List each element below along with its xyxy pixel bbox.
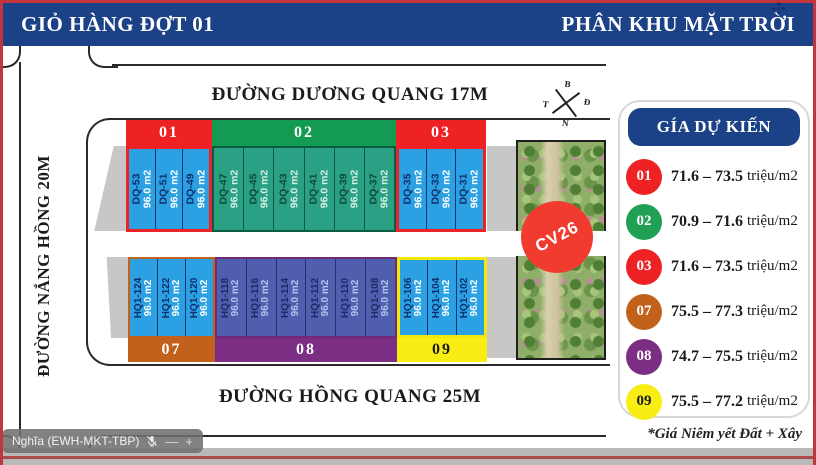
plot-area: 96.0 m2 [200,279,210,316]
plot-DQ-39: DQ-3996.0 m2 [334,148,364,230]
plot-area: 96.0 m2 [231,279,241,316]
plot-HQ1-104: HQ1-10496.0 m2 [427,260,455,335]
collapse-button[interactable]: — [165,435,178,448]
plot-DQ-47: DQ-4796.0 m2 [214,148,243,230]
plot-area: 96.0 m2 [229,170,240,209]
plot-DQ-51: DQ-5196.0 m2 [155,149,182,229]
legend-row-08: 0874.7 – 75.5triệu/m2 [620,334,808,379]
legend-row-01: 0171.6 – 73.5triệu/m2 [620,154,808,199]
header-bar: GIỎ HÀNG ĐỢT 01 PHÂN KHU MẶT TRỜI [3,3,813,46]
participant-name: Nghĩa (EWH-MKT-TBP) [12,434,139,448]
park-badge-label: CV26 [532,217,582,257]
plot-area: 96.0 m2 [414,279,424,316]
legend-price-unit: triệu/m2 [747,258,798,275]
compass-bar [552,92,580,114]
plot-area: 96.0 m2 [442,279,452,316]
plot-area: 96.0 m2 [381,279,391,316]
block-01-plots: DQ-5396.0 m2DQ-5196.0 m2DQ-4996.0 m2 [126,146,212,232]
plot-HQ1-120: HQ1-12096.0 m2 [185,259,213,336]
plot-area: 96.0 m2 [413,170,424,209]
plot-HQ1-114: HQ1-11496.0 m2 [276,259,306,336]
plot-HQ1-112: HQ1-11296.0 m2 [305,259,335,336]
mic-muted-icon[interactable] [146,435,158,447]
compass-south: N [562,118,570,129]
plot-id: DQ-47 [218,174,229,205]
block-07-plots: HQ1-12496.0 m2HQ1-12296.0 m2HQ1-12096.0 … [128,257,215,338]
block-02: 02 DQ-4796.0 m2DQ-4596.0 m2DQ-4396.0 m2D… [212,120,396,232]
street-label-bottom: ĐƯỜNG HỒNG QUANG 25M [140,386,560,408]
legend-price-range: 74.7 – 75.5 [671,348,743,366]
plot-HQ1-102: HQ1-10296.0 m2 [456,260,484,335]
compass-east: Đ [583,97,591,108]
plot-DQ-53: DQ-5396.0 m2 [129,149,155,229]
plot-DQ-37: DQ-3796.0 m2 [364,148,394,230]
plot-DQ-45: DQ-4596.0 m2 [243,148,273,230]
plot-area: 96.0 m2 [144,279,154,316]
plot-DQ-43: DQ-4396.0 m2 [273,148,303,230]
plot-HQ1-108: HQ1-10896.0 m2 [365,259,395,336]
plot-area: 96.0 m2 [349,170,360,209]
plot-area: 96.0 m2 [469,170,480,209]
plot-DQ-33: DQ-3396.0 m2 [426,149,454,229]
plot-DQ-41: DQ-4196.0 m2 [304,148,334,230]
participant-overlay[interactable]: Nghĩa (EWH-MKT-TBP) — + [2,429,203,453]
plot-area: 96.0 m2 [142,170,153,209]
plot-DQ-35: DQ-3596.0 m2 [399,149,426,229]
compass-icon: B Đ T N [542,79,589,126]
plot-id: HQ1-124 [133,277,143,318]
expand-button[interactable]: + [185,435,193,448]
gray-block-right-top [487,146,517,232]
plot-area: 96.0 m2 [319,170,330,209]
plot-area: 96.0 m2 [289,170,300,209]
screenshot-canvas: GIỎ HÀNG ĐỢT 01 PHÂN KHU MẶT TRỜI ĐƯỜNG … [0,0,816,465]
legend-block-badge: 01 [626,159,662,195]
legend-title: GÍA DỰ KIẾN [628,108,800,146]
plot-id: DQ-35 [402,174,413,205]
plot-area: 96.0 m2 [172,279,182,316]
plot-HQ1-110: HQ1-11096.0 m2 [335,259,365,336]
gray-block-right-bottom [487,257,517,358]
plot-area: 96.0 m2 [441,170,452,209]
legend-price-range: 71.6 – 73.5 [671,168,743,186]
block-09-label: 09 [397,338,487,362]
legend-row-03: 0371.6 – 73.5triệu/m2 [620,244,808,289]
legend-price-range: 75.5 – 77.3 [671,303,743,321]
legend-row-07: 0775.5 – 77.3triệu/m2 [620,289,808,334]
compass-west: T [542,99,549,110]
block-08: 08 HQ1-11896.0 m2HQ1-11696.0 m2HQ1-11496… [215,257,397,362]
legend-footnote: *Giá Niêm yết Đất + Xây [647,426,802,443]
plot-HQ1-122: HQ1-12296.0 m2 [157,259,185,336]
plot-area: 96.0 m2 [261,279,271,316]
street-label-top: ĐƯỜNG DƯƠNG QUANG 17M [140,84,560,106]
plot-HQ1-118: HQ1-11896.0 m2 [217,259,246,336]
block-02-plots: DQ-4796.0 m2DQ-4596.0 m2DQ-4396.0 m2DQ-4… [212,146,396,232]
legend-price-unit: triệu/m2 [747,393,798,410]
block-08-plots: HQ1-11896.0 m2HQ1-11696.0 m2HQ1-11496.0 … [215,257,397,338]
plot-HQ1-106: HQ1-10696.0 m2 [400,260,427,335]
legend-rows: 0171.6 – 73.5triệu/m20270.9 – 71.6triệu/… [620,154,808,424]
plot-id: DQ-45 [248,174,259,205]
block-07: 07 HQ1-12496.0 m2HQ1-12296.0 m2HQ1-12096… [128,257,215,362]
block-03-label: 03 [396,120,486,146]
page-title-left: GIỎ HÀNG ĐỢT 01 [21,12,214,37]
block-03: 03 DQ-3596.0 m2DQ-3396.0 m2DQ-3196.0 m2 [396,120,486,232]
block-07-label: 07 [128,338,215,362]
frame-border-left [0,0,3,465]
frame-border-top [0,0,816,3]
plot-area: 96.0 m2 [321,279,331,316]
legend-block-badge: 07 [626,294,662,330]
block-01-label: 01 [126,120,212,146]
block-09-plots: HQ1-10696.0 m2HQ1-10496.0 m2HQ1-10296.0 … [397,257,487,338]
block-03-plots: DQ-3596.0 m2DQ-3396.0 m2DQ-3196.0 m2 [396,146,486,232]
legend-price-unit: triệu/m2 [747,168,798,185]
plot-area: 96.0 m2 [379,170,390,209]
plot-area: 96.0 m2 [291,279,301,316]
legend-price-unit: triệu/m2 [747,348,798,365]
plot-area: 96.0 m2 [351,279,361,316]
plot-area: 96.0 m2 [259,170,270,209]
plot-HQ1-116: HQ1-11696.0 m2 [246,259,276,336]
legend-price-range: 70.9 – 71.6 [671,213,743,231]
park-badge: CV26 [521,201,593,273]
price-legend-panel: GÍA DỰ KIẾN 0171.6 – 73.5triệu/m20270.9 … [618,100,810,418]
plot-HQ1-124: HQ1-12496.0 m2 [130,259,157,336]
plot-area: 96.0 m2 [196,170,207,209]
plot-DQ-31: DQ-3196.0 m2 [455,149,483,229]
block-08-label: 08 [215,338,397,362]
legend-block-badge: 03 [626,249,662,285]
legend-row-09: 0975.5 – 77.2triệu/m2 [620,379,808,424]
plot-area: 96.0 m2 [470,279,480,316]
plot-area: 96.0 m2 [169,170,180,209]
compass-north: B [564,79,571,90]
block-01: 01 DQ-5396.0 m2DQ-5196.0 m2DQ-4996.0 m2 [126,120,212,232]
plot-DQ-49: DQ-4996.0 m2 [182,149,209,229]
page-title-right: PHÂN KHU MẶT TRỜI [562,12,796,37]
legend-price-range: 71.6 – 73.5 [671,258,743,276]
legend-price-unit: triệu/m2 [747,303,798,320]
legend-block-badge: 08 [626,339,662,375]
plot-id: HQ1-120 [189,277,199,318]
remote-cursor-icon [771,1,786,16]
block-09: 09 HQ1-10696.0 m2HQ1-10496.0 m2HQ1-10296… [397,257,487,362]
legend-row-02: 0270.9 – 71.6triệu/m2 [620,199,808,244]
road-edge-left [19,62,21,437]
block-02-label: 02 [212,120,396,146]
street-label-left: ĐƯỜNG NẮNG HỒNG 20M [34,141,60,391]
legend-block-badge: 02 [626,204,662,240]
legend-block-badge: 09 [626,384,662,420]
plot-id: HQ1-122 [161,277,171,318]
road-edge-top [112,64,606,66]
legend-price-range: 75.5 – 77.2 [671,393,743,411]
bottom-red-line [0,456,816,459]
legend-price-unit: triệu/m2 [747,213,798,230]
